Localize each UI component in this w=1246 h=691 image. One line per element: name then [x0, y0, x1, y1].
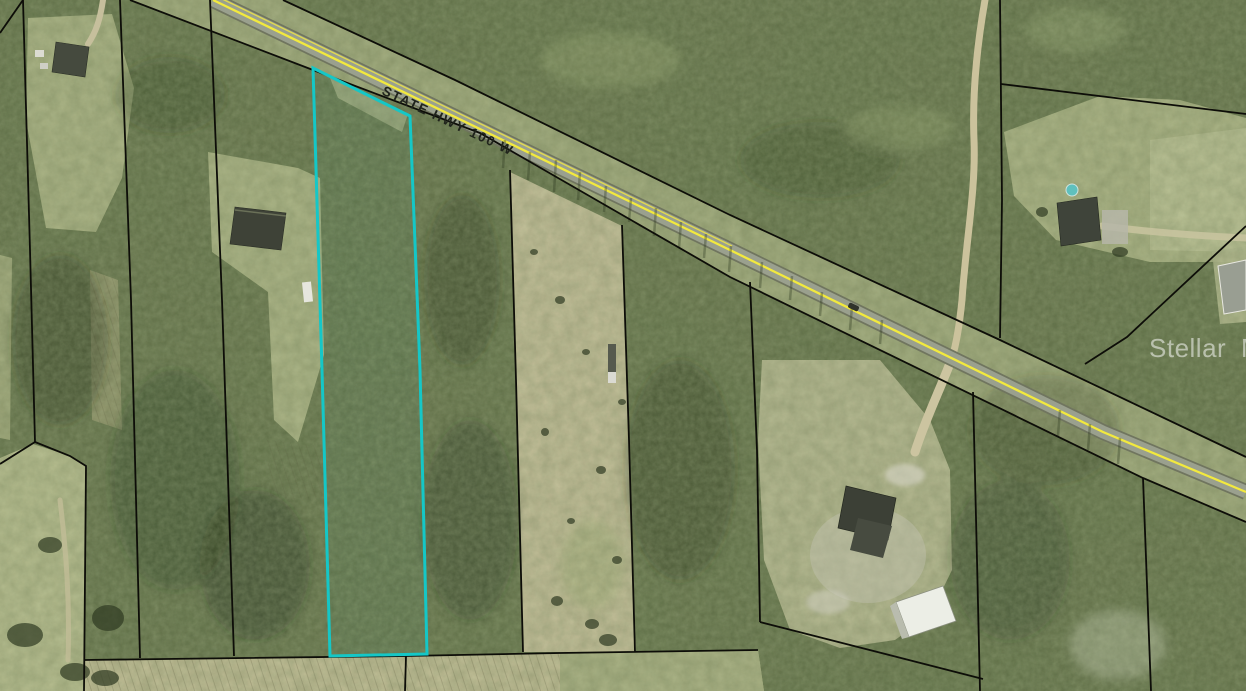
satellite-image: STATE HWY 100 W Stellar MLS [0, 0, 1246, 691]
aerial-parcel-map: STATE HWY 100 W Stellar MLS [0, 0, 1246, 691]
trailer-in-strip-cab [608, 372, 616, 383]
building-house-northeast [1057, 197, 1101, 246]
watermark-brand: Stellar [1149, 333, 1226, 363]
driveway-patch-1 [885, 464, 925, 486]
watermark-suffix: MLS [1241, 333, 1246, 363]
pool [1066, 184, 1078, 196]
building-shed-northwest-1 [35, 50, 44, 57]
patio-northeast [1102, 210, 1128, 244]
watermark: Stellar MLS [1149, 333, 1246, 363]
driveway-patch-2 [806, 590, 850, 614]
building-house-northwest [52, 42, 89, 77]
trailer-in-strip [608, 344, 616, 374]
boundary-line [405, 656, 406, 691]
highlighted-parcel-outline [313, 68, 427, 656]
building-shed-northwest-2 [40, 63, 48, 69]
canopy-shadow-grain [0, 0, 1246, 691]
